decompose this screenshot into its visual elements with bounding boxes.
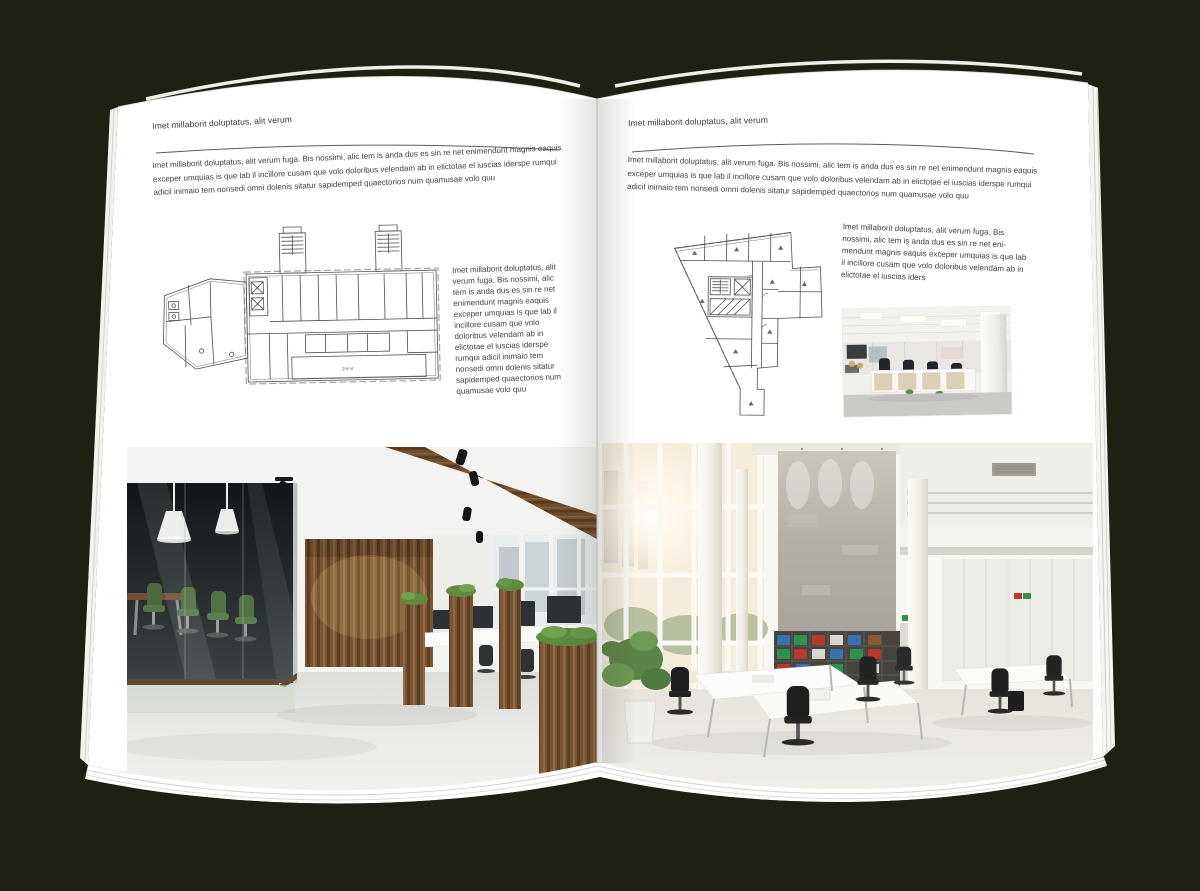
floor-plan-right bbox=[643, 218, 841, 420]
column bbox=[980, 314, 1007, 394]
office-photo-small bbox=[842, 306, 1012, 417]
cabinet-wall bbox=[942, 559, 1093, 681]
fire-sign bbox=[1014, 593, 1022, 599]
mezzanine bbox=[900, 443, 1093, 555]
right-page-side-text: Imet millaborit doluptatus, alit verum f… bbox=[841, 221, 1033, 288]
glass-base-rail bbox=[127, 679, 279, 685]
office-photo-right bbox=[602, 443, 1093, 793]
left-page-side-text: Imet millaborit doluptatus, alit verum f… bbox=[452, 261, 567, 397]
office-photo-left bbox=[127, 447, 597, 795]
floor-plan-left: 2-й эт bbox=[153, 220, 449, 412]
scene-background: { "colors": { "background": "#201f14", "… bbox=[0, 0, 1200, 891]
column-slim bbox=[736, 469, 748, 705]
concrete-wall bbox=[778, 451, 896, 631]
floor-plan-left-label: 2-й эт bbox=[342, 366, 353, 371]
glass-meeting-room bbox=[127, 483, 298, 713]
exit-sign bbox=[1023, 593, 1031, 599]
plan-symbols bbox=[690, 244, 807, 406]
